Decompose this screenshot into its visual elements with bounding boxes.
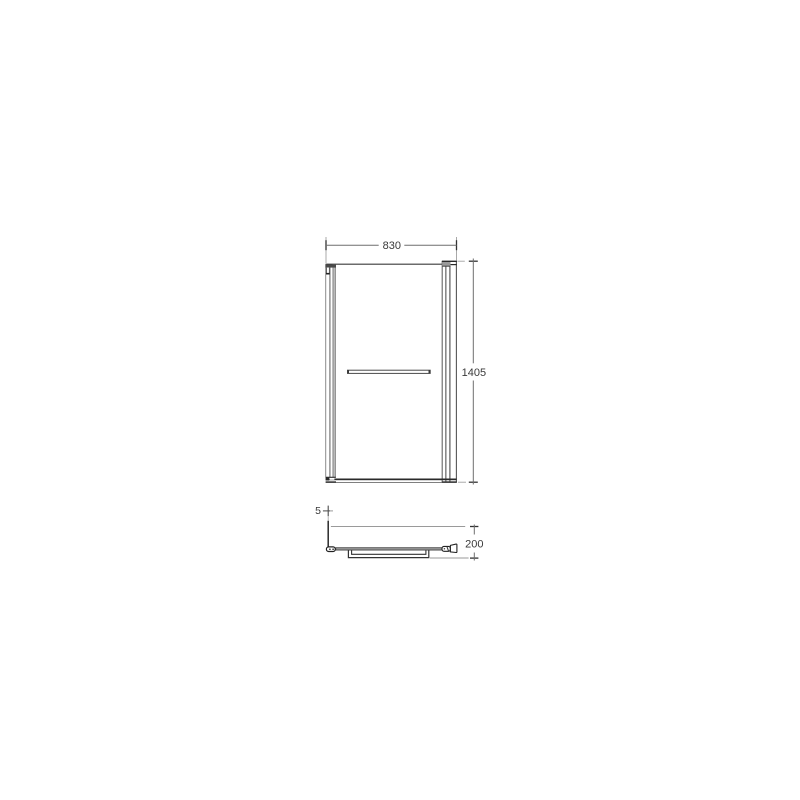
svg-text:5: 5 <box>315 505 321 517</box>
svg-text:1405: 1405 <box>462 367 486 379</box>
svg-text:200: 200 <box>465 539 483 551</box>
svg-text:830: 830 <box>383 240 401 252</box>
